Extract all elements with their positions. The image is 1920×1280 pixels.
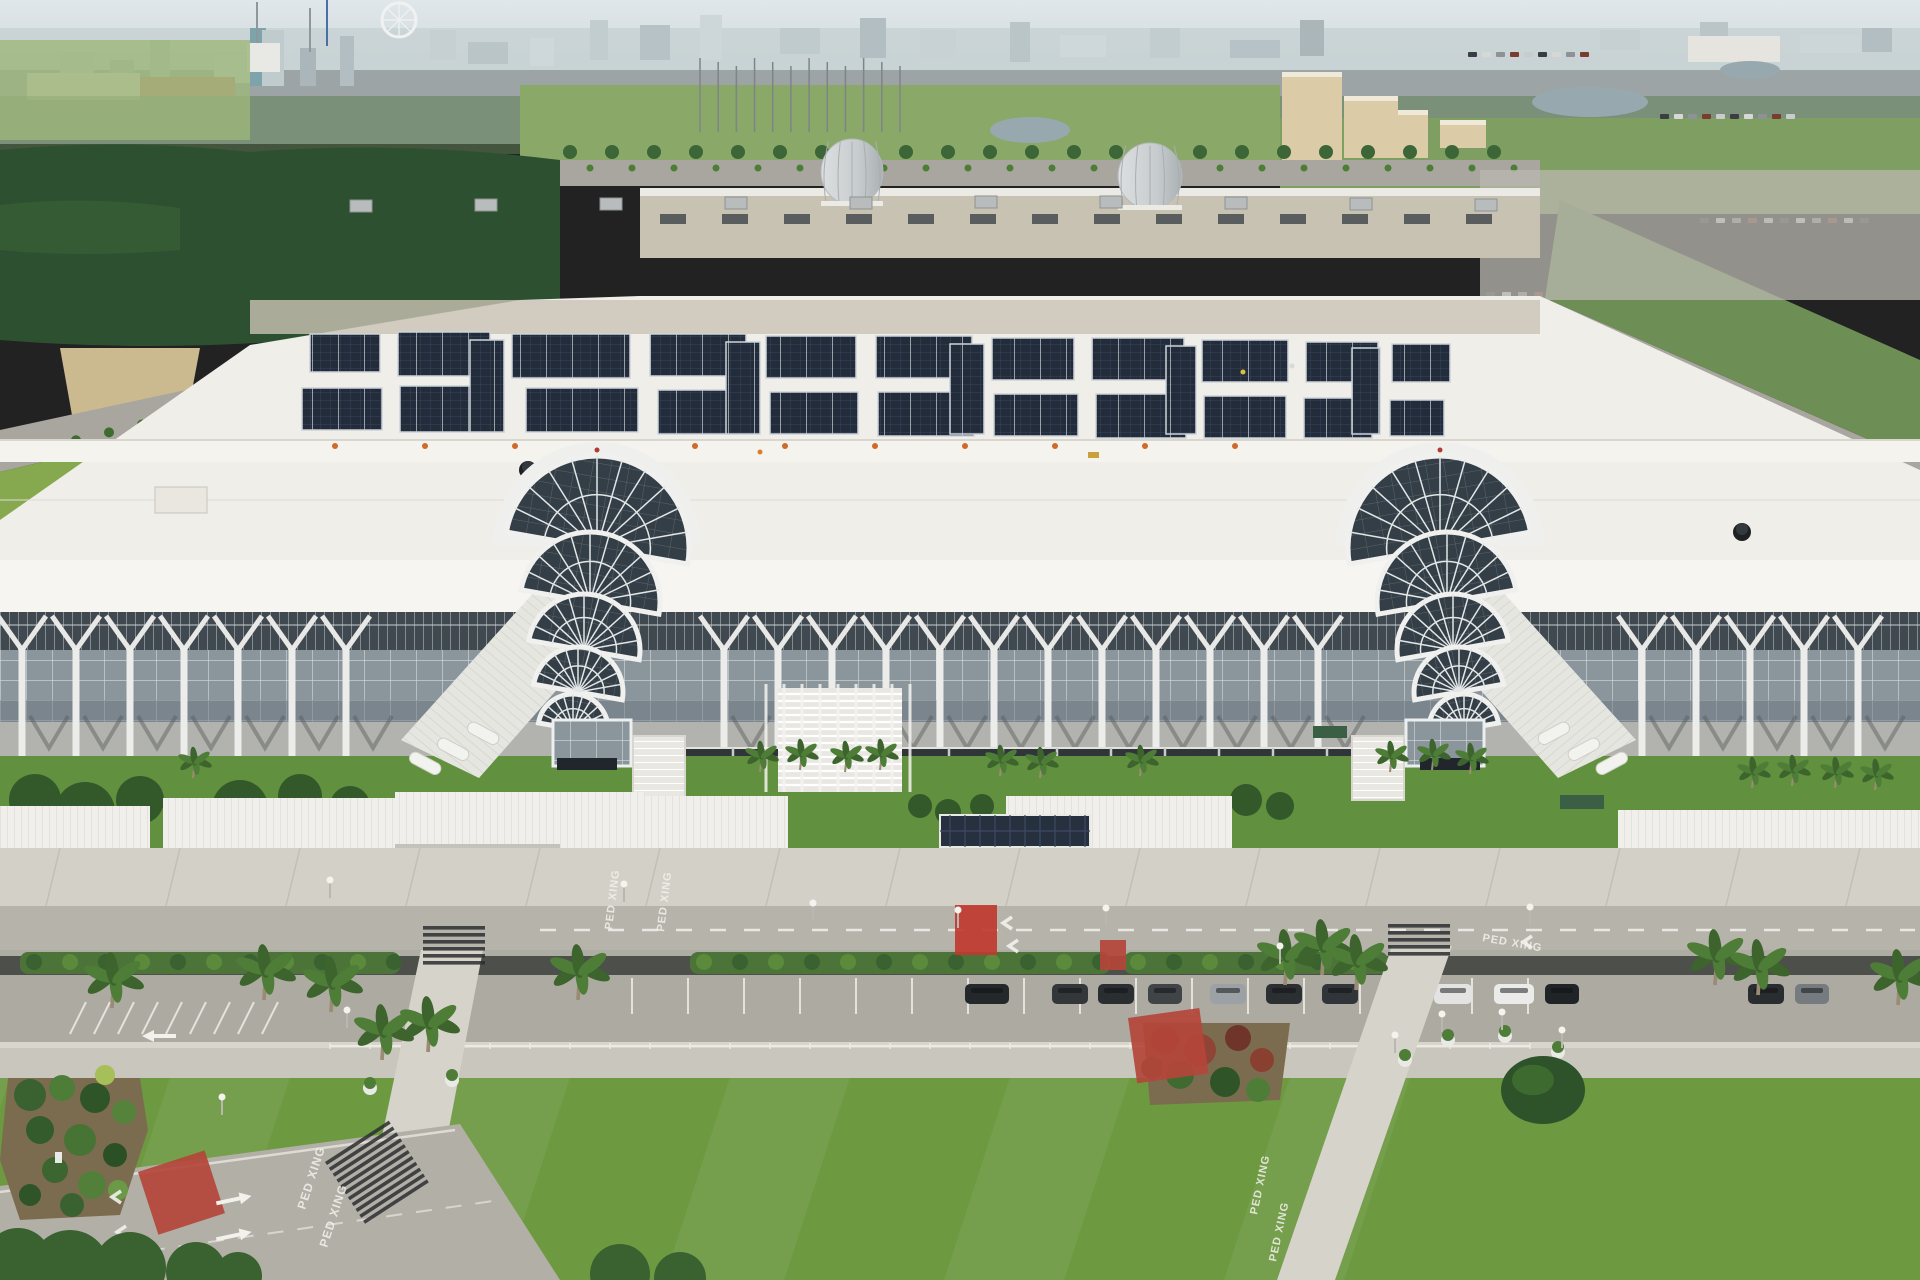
distant-parked-car [1510, 52, 1519, 57]
distant-parked-car [1538, 52, 1547, 57]
scene-canvas: PED XINGPED XINGPED XINGPED XINGPED XING… [0, 0, 1920, 1280]
roof-dome [1118, 143, 1182, 210]
grand-stair-block [778, 688, 902, 792]
rear-tree [1487, 145, 1501, 159]
rear-tree [983, 145, 997, 159]
distant-parked-car [1744, 114, 1753, 119]
rear-palm [1007, 165, 1014, 172]
garden-shrub [1210, 1067, 1240, 1097]
garden-tree [1266, 792, 1294, 820]
rear-palm [1469, 165, 1476, 172]
red-pavement-marking [1100, 940, 1126, 970]
roof-cart [1088, 452, 1099, 458]
light-pole-lamp [810, 900, 817, 907]
rear-tree [689, 145, 703, 159]
front-lower-roof [0, 560, 1920, 614]
rear-tree [1361, 145, 1375, 159]
city-building [590, 20, 608, 60]
rear-palm [671, 165, 678, 172]
parked-car [1434, 984, 1472, 1004]
solar-panel-array [1392, 344, 1450, 382]
city-building [640, 25, 670, 60]
median-bush [768, 954, 784, 970]
outer-drive [0, 975, 1920, 1042]
median-bush [1238, 954, 1254, 970]
car-windshield [1801, 988, 1823, 993]
vent-window [1280, 214, 1306, 224]
city-building [920, 30, 956, 58]
red-pavement-marking [1128, 1008, 1208, 1083]
solar-panel-array [310, 334, 380, 372]
light-pole-lamp [621, 881, 628, 888]
parked-car [1494, 984, 1534, 1004]
atrium-apex-beacon [595, 448, 600, 453]
traffic-cone [1142, 443, 1148, 449]
median-bush [876, 954, 892, 970]
hvac-unit [1350, 198, 1372, 210]
distant-parked-car [1482, 52, 1491, 57]
light-pole-lamp [1103, 905, 1110, 912]
rear-palm [1301, 165, 1308, 172]
vent-window [970, 214, 996, 224]
parked-car [965, 984, 1009, 1004]
parked-car [1795, 984, 1829, 1004]
grand-staircase [766, 684, 910, 792]
solar-panel-array [1204, 396, 1286, 438]
roof-worker [1290, 364, 1295, 369]
pond [1532, 87, 1648, 117]
garden-bush [26, 1116, 54, 1144]
parked-car [1052, 984, 1088, 1004]
planter-plant [1399, 1049, 1411, 1061]
traffic-cone [512, 443, 518, 449]
median-bush [1056, 954, 1072, 970]
median-bush [26, 954, 42, 970]
distant-parked-car [1660, 114, 1669, 119]
traffic-cone [872, 443, 878, 449]
city-building [1600, 30, 1640, 50]
median-bush [732, 954, 748, 970]
rear-palm [965, 165, 972, 172]
vent-window [908, 214, 934, 224]
ferris-wheel [382, 3, 416, 37]
vent-window [784, 214, 810, 224]
planter-plant [1499, 1025, 1511, 1037]
rear-tree [773, 145, 787, 159]
rear-palm [587, 165, 594, 172]
parked-car [1210, 984, 1246, 1004]
garden-bush [112, 1100, 136, 1124]
median-bush [170, 954, 186, 970]
garden-bush [49, 1075, 75, 1101]
car-windshield [1328, 988, 1352, 993]
vent-window [1094, 214, 1120, 224]
vent-window [1404, 214, 1430, 224]
city-building [468, 42, 508, 64]
median-bush [948, 954, 964, 970]
median-bush [912, 954, 928, 970]
light-pole-lamp [955, 907, 962, 914]
solar-panel-array [994, 394, 1078, 436]
solar-panel-array [1390, 400, 1444, 436]
atrium-stairs [633, 736, 685, 800]
rear-tree [1319, 145, 1333, 159]
promenade [0, 1048, 1920, 1078]
roof-step-wall [250, 300, 1540, 334]
light-pole-lamp [1499, 1009, 1506, 1016]
rear-tree [605, 145, 619, 159]
vent-window [722, 214, 748, 224]
car-windshield [1104, 988, 1128, 993]
garden-bush [60, 1193, 84, 1217]
garden-tree [1230, 784, 1262, 816]
garden-bush [103, 1143, 127, 1167]
car-windshield [1058, 988, 1082, 993]
solar-panel-array [770, 392, 858, 434]
traffic-cone [692, 443, 698, 449]
roof-parapet-walk [0, 440, 1920, 462]
distant-parked-car [1566, 52, 1575, 57]
forest-texture [0, 201, 180, 254]
light-pole-lamp [344, 1007, 351, 1014]
traffic-cone [422, 443, 428, 449]
distant-parked-car [1758, 114, 1767, 119]
median-bush [62, 954, 78, 970]
rear-palm [923, 165, 930, 172]
solar-panel-array [302, 388, 382, 430]
white-hotel [1688, 36, 1780, 62]
solar-panel-canopy [940, 815, 1090, 847]
car-windshield [1272, 988, 1296, 993]
roof-worker [1241, 370, 1246, 375]
car-windshield [1154, 988, 1176, 993]
rear-tree [941, 145, 955, 159]
city-building [1060, 35, 1106, 57]
traffic-cone [1232, 443, 1238, 449]
city-building [430, 30, 456, 60]
city-building [1300, 20, 1324, 56]
solar-panel-array [470, 340, 504, 432]
rear-palm [1217, 165, 1224, 172]
median-bush [804, 954, 820, 970]
vent-window [846, 214, 872, 224]
hvac-unit [1225, 197, 1247, 209]
rear-tree [1193, 145, 1207, 159]
solar-panel-array [1202, 340, 1288, 382]
median-bush [386, 954, 402, 970]
median-hedges [20, 952, 1388, 974]
hvac-unit [725, 197, 747, 209]
city-building [780, 28, 820, 54]
parked-car [1148, 984, 1182, 1004]
median-bush [1166, 954, 1182, 970]
rear-tree [1445, 145, 1459, 159]
city-building [1800, 35, 1860, 53]
light-pole-lamp [1527, 904, 1534, 911]
light-pole-lamp [1277, 943, 1284, 950]
car-windshield [1551, 988, 1573, 993]
garden-bush [14, 1079, 46, 1111]
distant-parked-car [1468, 52, 1477, 57]
rear-tree [563, 145, 577, 159]
distant-parked-car [1716, 114, 1725, 119]
planter-plant [1442, 1029, 1454, 1041]
rear-tree [1067, 145, 1081, 159]
rear-palm [1091, 165, 1098, 172]
rear-palm [1343, 165, 1350, 172]
rear-tree [899, 145, 913, 159]
rear-palm [797, 165, 804, 172]
distant-parked-car [1730, 114, 1739, 119]
pond [990, 117, 1070, 143]
solar-panel-array [992, 338, 1074, 380]
solar-panel-array [526, 388, 638, 432]
atrium-apex-beacon [1438, 448, 1443, 453]
hvac-unit [1475, 199, 1497, 211]
parked-car [1266, 984, 1302, 1004]
garden-statue [55, 1152, 62, 1163]
city-building [1230, 40, 1280, 58]
planter-plant [364, 1077, 376, 1089]
car-windshield [1500, 988, 1528, 993]
garden-shrub [1246, 1078, 1270, 1102]
light-pole-lamp [1559, 1027, 1566, 1034]
garden-shrub [1225, 1025, 1251, 1051]
median-bush [1130, 954, 1146, 970]
solar-panel-array [950, 344, 984, 434]
rear-tree [731, 145, 745, 159]
rear-tree [1403, 145, 1417, 159]
vent-window [1156, 214, 1182, 224]
traffic-cone [332, 443, 338, 449]
median-bush [1202, 954, 1218, 970]
median-bush [1020, 954, 1036, 970]
vent-window [1466, 214, 1492, 224]
solar-panel-array [512, 334, 630, 378]
rear-palm [1385, 165, 1392, 172]
vent-window [660, 214, 686, 224]
hvac-unit [350, 200, 372, 212]
car-windshield [1440, 988, 1466, 993]
car-windshield [971, 988, 1003, 993]
rear-palm [1259, 165, 1266, 172]
rear-street [560, 160, 1540, 186]
light-pole-lamp [219, 1094, 226, 1101]
median-bush [206, 954, 222, 970]
green-awning [1560, 795, 1604, 809]
solar-panel-array [1166, 346, 1196, 434]
light-pole-lamp [327, 877, 334, 884]
rear-palm [713, 165, 720, 172]
vent-window [1032, 214, 1058, 224]
hvac-unit [975, 196, 997, 208]
garden-bush [95, 1065, 115, 1085]
distant-parked-car [1772, 114, 1781, 119]
rear-palm [755, 165, 762, 172]
garden-shrub [1250, 1048, 1274, 1072]
traffic-cone [782, 443, 788, 449]
rear-tree [1235, 145, 1249, 159]
city-building [530, 38, 554, 66]
garden-bush [80, 1083, 110, 1113]
city-building [300, 48, 316, 86]
rear-palm [629, 165, 636, 172]
garden-bush [64, 1124, 96, 1156]
distant-parked-car [1688, 114, 1697, 119]
city-building [340, 36, 354, 86]
distant-parked-car [1702, 114, 1711, 119]
city-building [700, 15, 722, 60]
roof-penthouse-box [155, 487, 207, 513]
distant-parked-car [1674, 114, 1683, 119]
parked-car [1545, 984, 1579, 1004]
glass-dark-row [0, 700, 1920, 722]
solar-panel-array [1352, 348, 1380, 434]
atrium-stairs [1352, 736, 1404, 800]
street-palm [104, 427, 114, 437]
garden-bush [19, 1184, 41, 1206]
red-pavement-marking [955, 905, 997, 955]
hvac-unit [475, 199, 497, 211]
city-building [1010, 22, 1030, 62]
garden-tree [908, 794, 932, 818]
hvac-unit [600, 198, 622, 210]
green-awning [1313, 726, 1347, 738]
distant-parked-car [1552, 52, 1561, 57]
traffic-cone [1052, 443, 1058, 449]
light-pole-lamp [1392, 1032, 1399, 1039]
right-distant-parking [1480, 170, 1920, 300]
light-pole-lamp [1439, 1011, 1446, 1018]
parked-car [1098, 984, 1134, 1004]
parked-car [1322, 984, 1358, 1004]
rear-palm [1427, 165, 1434, 172]
hvac-unit [1100, 196, 1122, 208]
church [247, 43, 280, 72]
rear-palm [1049, 165, 1056, 172]
roof-dome [821, 139, 883, 206]
median-hedge [690, 952, 1110, 974]
traffic-cone [962, 443, 968, 449]
rear-tree [647, 145, 661, 159]
rear-tree [1025, 145, 1039, 159]
city-building [1862, 28, 1892, 52]
rear-tree [1109, 145, 1123, 159]
solar-panel-array [766, 336, 856, 378]
planter-plant [446, 1069, 458, 1081]
distant-parked-car [1496, 52, 1505, 57]
car-windshield [1216, 988, 1240, 993]
solar-panel-array [726, 342, 760, 434]
city-building [860, 18, 886, 58]
hvac-unit [850, 197, 872, 209]
median-bush [840, 954, 856, 970]
pond [1720, 61, 1780, 79]
median-bush [984, 954, 1000, 970]
vent-window [1218, 214, 1244, 224]
distant-parked-car [1786, 114, 1795, 119]
garden-bush [78, 1171, 106, 1199]
city-building [1150, 28, 1180, 58]
atrium-entry-recess [557, 758, 617, 770]
vent-window [1342, 214, 1368, 224]
distant-parked-car [1524, 52, 1533, 57]
roof-worker [758, 450, 763, 455]
hotel-building [1282, 72, 1342, 160]
far-left-fields [0, 40, 250, 140]
distant-parked-car [1580, 52, 1589, 57]
back-hall-wall [640, 196, 1540, 258]
median-bush [696, 954, 712, 970]
aerial-photo-convention-center: PED XINGPED XINGPED XINGPED XINGPED XING… [0, 0, 1920, 1280]
rear-tree [1277, 145, 1291, 159]
